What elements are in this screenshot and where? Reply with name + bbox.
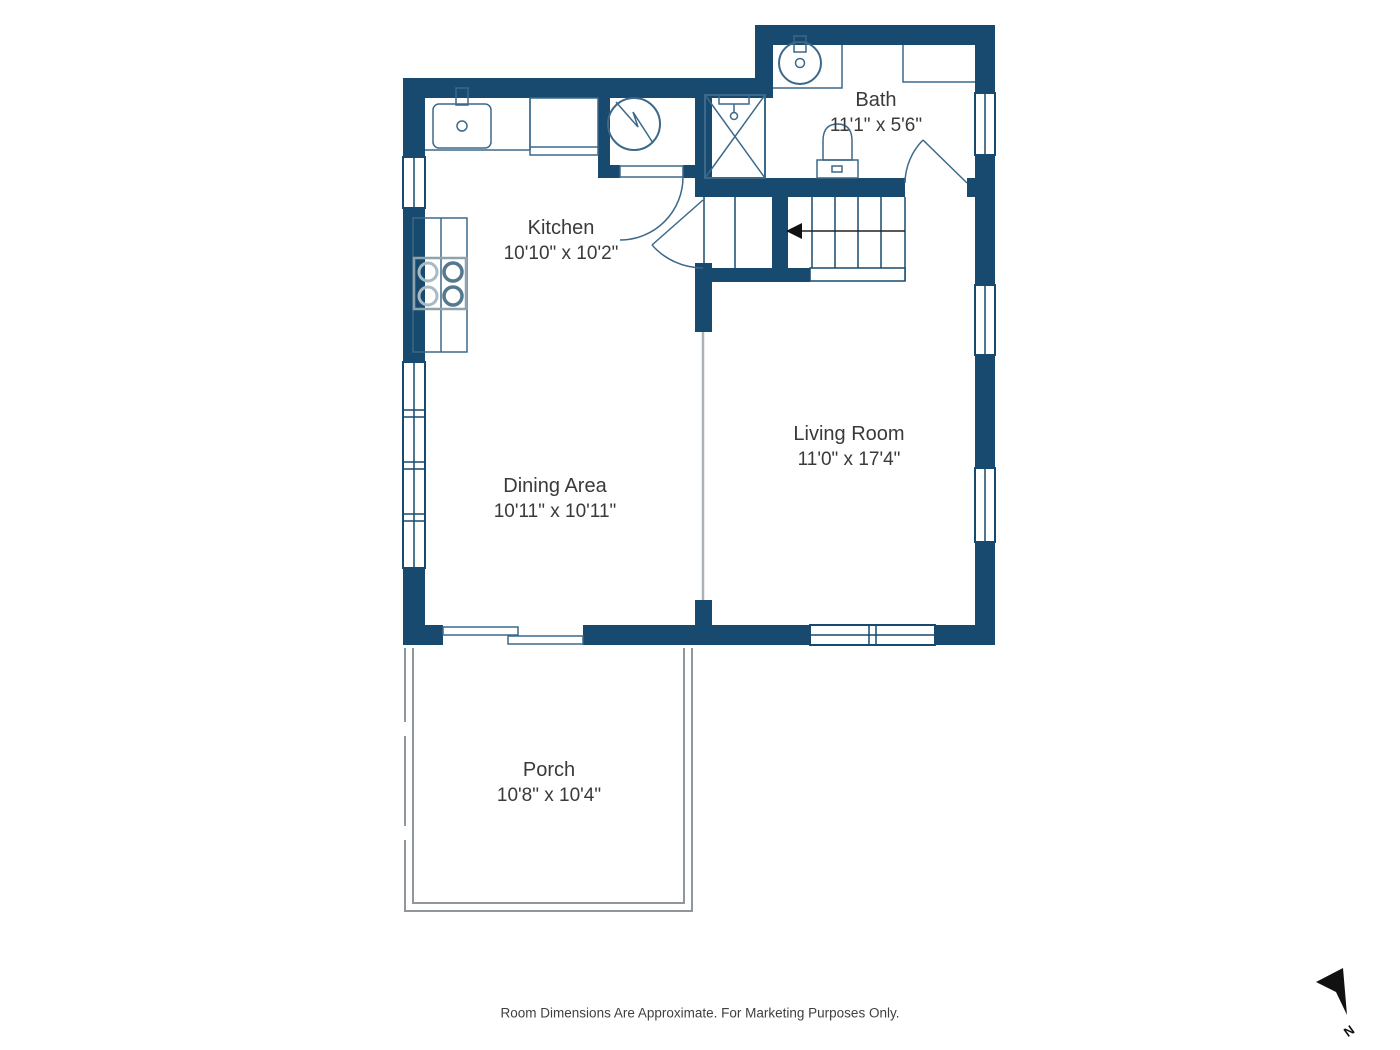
shower-icon	[705, 95, 765, 178]
sliding-door	[443, 627, 583, 644]
room-name: Dining Area	[494, 473, 617, 499]
room-name: Porch	[497, 757, 601, 783]
room-dimensions: 10'10" x 10'2"	[504, 241, 619, 267]
kitchen-counter	[425, 98, 598, 155]
stairs-direction-arrow	[786, 223, 905, 239]
room-name: Living Room	[793, 421, 904, 447]
north-arrow-icon	[1316, 968, 1347, 1015]
water-heater-icon	[608, 98, 660, 150]
room-label-porch: Porch 10'8" x 10'4"	[497, 757, 601, 809]
room-label-kitchen: Kitchen 10'10" x 10'2"	[504, 215, 619, 267]
room-label-dining-area: Dining Area 10'11" x 10'11"	[494, 473, 617, 525]
floor-plan-drawing	[0, 0, 1400, 1050]
disclaimer-text: Room Dimensions Are Approximate. For Mar…	[501, 1006, 900, 1021]
floor-plan-canvas: Bath 11'1" x 5'6" Kitchen 10'10" x 10'2"…	[0, 0, 1400, 1050]
room-dimensions: 11'0" x 17'4"	[793, 447, 904, 473]
room-label-bath: Bath 11'1" x 5'6"	[830, 87, 922, 139]
room-name: Kitchen	[504, 215, 619, 241]
room-label-living-room: Living Room 11'0" x 17'4"	[793, 421, 904, 473]
room-dimensions: 10'8" x 10'4"	[497, 783, 601, 809]
room-dimensions: 10'11" x 10'11"	[494, 499, 617, 525]
room-name: Bath	[830, 87, 922, 113]
room-dimensions: 11'1" x 5'6"	[830, 113, 922, 139]
door-arcs	[620, 140, 967, 268]
